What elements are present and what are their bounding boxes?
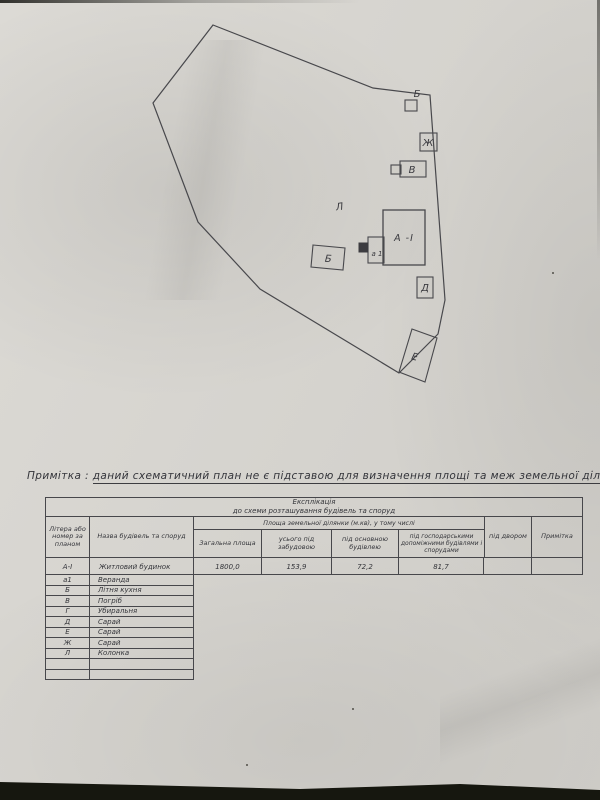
cell-name: Житловий будинок bbox=[90, 558, 194, 575]
table-row: Б Літня кухня bbox=[46, 586, 193, 597]
cell-remark bbox=[532, 558, 582, 575]
cell-name: Літня кухня bbox=[90, 586, 193, 596]
table-row: Ж Сарай bbox=[46, 638, 193, 649]
table-row: Е Сарай bbox=[46, 628, 193, 639]
site-plan-drawing: Б Ж В Л А -І а 1 Б Д Е bbox=[0, 0, 600, 460]
cell-name: Погріб bbox=[90, 596, 193, 606]
cell-name: Убиральня bbox=[90, 607, 193, 617]
note-label: Примітка : bbox=[27, 470, 89, 482]
building-house-label: А -І bbox=[393, 233, 414, 244]
exposition-rows: а1 Веранда Б Літня кухня В Погріб Г Убир… bbox=[45, 575, 194, 680]
building-a1-label: а 1 bbox=[372, 250, 383, 258]
table-subtitle: до схеми розташування будівель та споруд bbox=[46, 507, 582, 517]
dust-speck bbox=[246, 764, 248, 766]
table-row bbox=[46, 659, 193, 670]
dust-speck bbox=[352, 708, 354, 710]
cell-name: Сарай bbox=[90, 628, 193, 638]
cell-letter: а1 bbox=[46, 575, 90, 585]
exposition-table: Експлікація до схеми розташування будіве… bbox=[45, 497, 583, 575]
table-row-house: А-І Житловий будинок 1800,0 153,9 72,2 8… bbox=[46, 557, 582, 575]
table-row: Г Убиральня bbox=[46, 607, 193, 618]
header-area-subcolumns: Загальна площа усього під забудовою під … bbox=[194, 530, 484, 557]
header-built-area: усього під забудовою bbox=[262, 530, 332, 557]
header-area-span: Площа земельної ділянки (м.кв), у тому ч… bbox=[194, 517, 484, 530]
cell-yard bbox=[484, 558, 532, 575]
cell-total: 1800,0 bbox=[194, 558, 262, 575]
table-row: а1 Веранда bbox=[46, 575, 193, 586]
cell-household: 81,7 bbox=[399, 558, 484, 575]
cell-letter bbox=[46, 659, 90, 669]
header-area-group: Площа земельної ділянки (м.кв), у тому ч… bbox=[194, 517, 484, 557]
header-name: Назва будівель та споруд bbox=[90, 517, 194, 557]
cell-main-building: 72,2 bbox=[332, 558, 399, 575]
building-a1-porch bbox=[359, 243, 368, 252]
table-row bbox=[46, 670, 193, 680]
header-main-building-area: під основною будівлею bbox=[332, 530, 399, 557]
parcel-boundary bbox=[153, 25, 445, 373]
building-b-label: Б bbox=[324, 254, 332, 265]
cell-name: Сарай bbox=[90, 617, 193, 627]
cell-letter: Б bbox=[46, 586, 90, 596]
cell-letter: Ж bbox=[46, 638, 90, 648]
scanned-document-photo: Б Ж В Л А -І а 1 Б Д Е Примітка : даний … bbox=[0, 0, 600, 800]
cell-letter: В bbox=[46, 596, 90, 606]
building-zh-label: Ж bbox=[422, 138, 435, 149]
dust-speck bbox=[552, 272, 554, 274]
cell-letter: Л bbox=[46, 649, 90, 659]
header-total-area: Загальна площа bbox=[194, 530, 262, 557]
building-b-top-label: Б bbox=[414, 89, 421, 100]
cell-name: Веранда bbox=[90, 575, 193, 585]
table-row: Л Колонка bbox=[46, 649, 193, 660]
building-v-label: В bbox=[409, 165, 416, 176]
header-letter: Літера або номер за планом bbox=[46, 517, 90, 557]
building-d-label: Д bbox=[420, 283, 429, 294]
header-remark: Примітка bbox=[532, 517, 582, 557]
note-line: Примітка : даний схематичний план не є п… bbox=[27, 470, 597, 482]
table-header-row: Літера або номер за планом Назва будівел… bbox=[46, 517, 582, 557]
cell-name bbox=[90, 659, 193, 669]
cell-letter bbox=[46, 670, 90, 680]
building-v-annex bbox=[391, 165, 401, 174]
header-household-area: під господарськими допоміжними будівлями… bbox=[399, 530, 484, 557]
cell-built: 153,9 bbox=[262, 558, 332, 575]
header-yard: під двором bbox=[484, 517, 532, 557]
column-l-label: Л bbox=[334, 201, 344, 213]
cell-letter: Г bbox=[46, 607, 90, 617]
table-row: В Погріб bbox=[46, 596, 193, 607]
table-title: Експлікація bbox=[46, 498, 582, 507]
cell-letter: Е bbox=[46, 628, 90, 638]
cell-letter: А-І bbox=[46, 558, 90, 575]
cell-name: Колонка bbox=[90, 649, 193, 659]
cell-name bbox=[90, 670, 193, 680]
building-b-top bbox=[405, 100, 417, 111]
cell-letter: Д bbox=[46, 617, 90, 627]
table-row: Д Сарай bbox=[46, 617, 193, 628]
cell-name: Сарай bbox=[90, 638, 193, 648]
note-text: даний схематичний план не є підставою дл… bbox=[93, 470, 600, 484]
